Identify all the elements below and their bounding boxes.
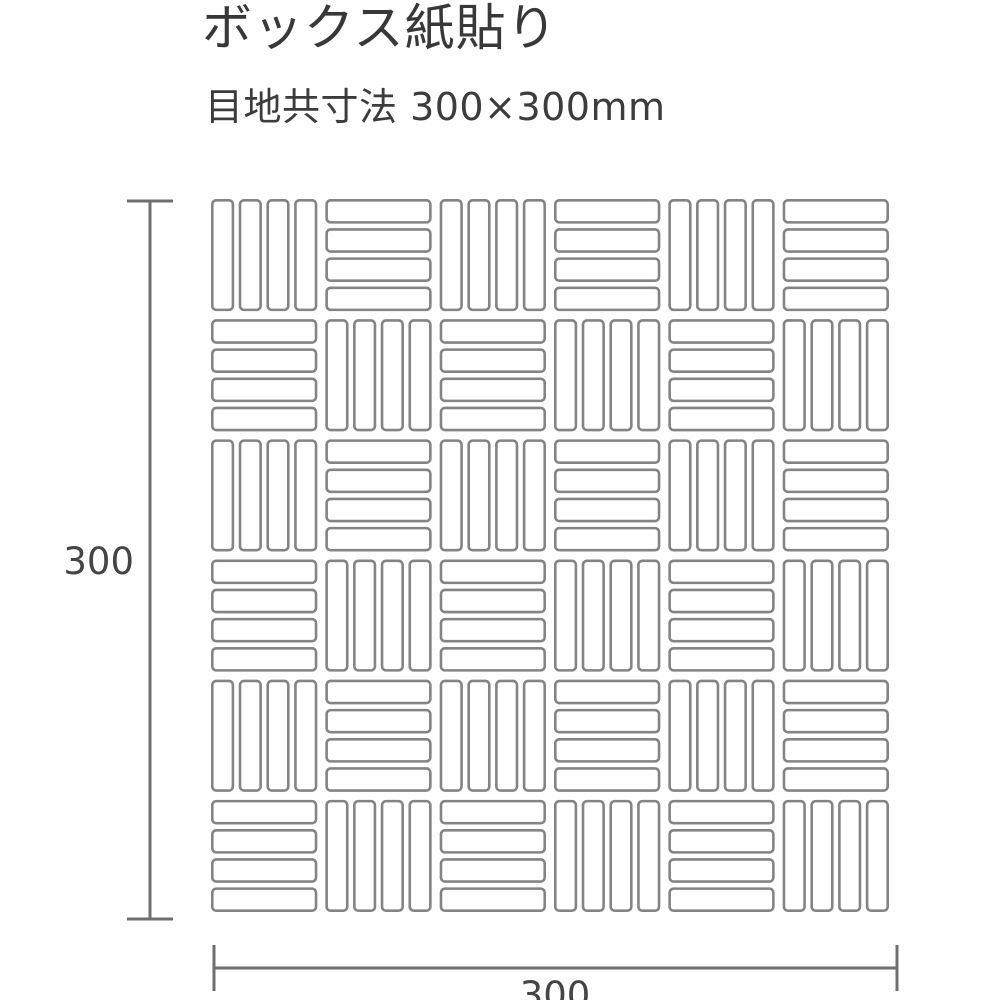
tile-bar-vertical: [670, 200, 691, 310]
tile-bar-horizontal: [327, 229, 431, 251]
tile-bar-vertical: [327, 320, 348, 430]
tile-bar-vertical: [212, 441, 233, 551]
tile-bar-horizontal: [441, 379, 545, 401]
tile-bar-horizontal: [441, 830, 545, 852]
tile-bar-horizontal: [555, 259, 659, 281]
tile-bar-horizontal: [555, 681, 659, 703]
tile-bar-vertical: [697, 681, 718, 791]
tile-bar-horizontal: [212, 408, 316, 430]
tile-bar-vertical: [327, 801, 348, 911]
tile-bar-vertical: [382, 320, 403, 430]
tile-bar-horizontal: [327, 768, 431, 790]
tile-bar-vertical: [867, 801, 888, 911]
tile-bar-vertical: [524, 200, 545, 310]
tile-bar-horizontal: [670, 379, 774, 401]
catalog-spec-page: ボックス紙貼り 目地共寸法 300×300mm 300 300: [0, 0, 1000, 1000]
tile-bar-horizontal: [327, 441, 431, 463]
tile-bar-horizontal: [212, 648, 316, 670]
tile-bar-vertical: [697, 441, 718, 551]
tile-bar-vertical: [441, 200, 462, 310]
tile-bar-vertical: [524, 681, 545, 791]
tile-bar-horizontal: [670, 801, 774, 823]
tile-bar-vertical: [441, 681, 462, 791]
tile-bar-horizontal: [784, 710, 888, 732]
tile-bar-horizontal: [555, 470, 659, 492]
tile-bar-vertical: [268, 681, 289, 791]
tile-bar-horizontal: [670, 320, 774, 342]
height-dimension-label: 300: [58, 543, 134, 580]
tile-bar-horizontal: [555, 739, 659, 761]
tile-bar-vertical: [240, 681, 261, 791]
tile-bar-horizontal: [327, 739, 431, 761]
tile-bar-horizontal: [327, 710, 431, 732]
tile-bar-horizontal: [441, 648, 545, 670]
tile-bar-horizontal: [784, 739, 888, 761]
tile-bar-horizontal: [784, 499, 888, 521]
tile-bar-horizontal: [212, 590, 316, 612]
tile-bar-horizontal: [555, 710, 659, 732]
tile-layout-diagram: [0, 0, 1000, 1000]
tile-bar-vertical: [753, 441, 774, 551]
tile-bar-vertical: [555, 561, 576, 671]
tile-bar-horizontal: [784, 768, 888, 790]
tile-bar-horizontal: [784, 229, 888, 251]
tile-bar-vertical: [496, 441, 517, 551]
tile-bar-vertical: [638, 561, 659, 671]
tile-bar-vertical: [839, 801, 860, 911]
tile-bar-vertical: [295, 200, 316, 310]
tile-bar-vertical: [240, 200, 261, 310]
tile-bar-vertical: [638, 320, 659, 430]
tile-bar-horizontal: [784, 681, 888, 703]
tile-bar-horizontal: [212, 379, 316, 401]
tile-bar-vertical: [725, 441, 746, 551]
tile-bar-vertical: [670, 681, 691, 791]
tile-bar-horizontal: [441, 801, 545, 823]
tile-bar-vertical: [611, 561, 632, 671]
tile-bar-horizontal: [212, 859, 316, 881]
tile-bar-vertical: [354, 801, 375, 911]
tile-bar-horizontal: [327, 499, 431, 521]
tile-bar-horizontal: [670, 648, 774, 670]
tile-bar-horizontal: [327, 200, 431, 222]
tile-bar-horizontal: [784, 441, 888, 463]
tile-bar-vertical: [784, 561, 805, 671]
tile-bar-vertical: [753, 681, 774, 791]
tile-bar-horizontal: [327, 259, 431, 281]
tile-bar-vertical: [753, 200, 774, 310]
tile-bar-vertical: [784, 801, 805, 911]
tile-bar-horizontal: [212, 801, 316, 823]
tile-bar-vertical: [410, 320, 431, 430]
tile-bar-horizontal: [441, 408, 545, 430]
tile-bar-vertical: [784, 320, 805, 430]
tile-bar-horizontal: [555, 768, 659, 790]
tile-bar-vertical: [212, 200, 233, 310]
tile-bar-vertical: [268, 200, 289, 310]
tile-bar-vertical: [295, 681, 316, 791]
tile-bar-vertical: [583, 801, 604, 911]
tile-bar-horizontal: [212, 350, 316, 372]
tile-bar-vertical: [555, 801, 576, 911]
tile-bar-horizontal: [784, 200, 888, 222]
tile-bar-horizontal: [441, 619, 545, 641]
tile-bar-horizontal: [555, 499, 659, 521]
tile-bar-horizontal: [555, 288, 659, 310]
tile-bar-vertical: [382, 561, 403, 671]
tile-bar-horizontal: [441, 590, 545, 612]
tile-bar-horizontal: [327, 470, 431, 492]
tile-bar-horizontal: [327, 681, 431, 703]
tile-bar-horizontal: [212, 830, 316, 852]
tile-bar-horizontal: [212, 320, 316, 342]
tile-bar-horizontal: [670, 889, 774, 911]
tile-bar-horizontal: [670, 619, 774, 641]
tile-bar-vertical: [469, 441, 490, 551]
tile-bar-vertical: [638, 801, 659, 911]
tile-bar-horizontal: [555, 528, 659, 550]
tile-bar-vertical: [670, 441, 691, 551]
tile-bar-horizontal: [670, 590, 774, 612]
tile-bar-horizontal: [670, 561, 774, 583]
tile-bar-horizontal: [212, 561, 316, 583]
tile-bar-horizontal: [670, 830, 774, 852]
tile-bar-horizontal: [327, 528, 431, 550]
tile-bar-horizontal: [784, 259, 888, 281]
tile-bar-vertical: [240, 441, 261, 551]
tile-bar-horizontal: [327, 288, 431, 310]
tile-bar-horizontal: [670, 408, 774, 430]
tile-bar-vertical: [441, 441, 462, 551]
tile-bar-vertical: [867, 320, 888, 430]
tile-bar-vertical: [496, 200, 517, 310]
tile-bar-vertical: [725, 681, 746, 791]
tile-bar-vertical: [469, 681, 490, 791]
width-dimension-label: 300: [500, 977, 610, 1000]
tile-bar-horizontal: [555, 200, 659, 222]
tile-bar-vertical: [611, 801, 632, 911]
tile-bar-vertical: [583, 561, 604, 671]
tile-bar-vertical: [268, 441, 289, 551]
tile-bar-vertical: [354, 561, 375, 671]
tile-bar-vertical: [812, 561, 833, 671]
tile-bar-horizontal: [441, 320, 545, 342]
tile-bar-vertical: [555, 320, 576, 430]
tile-bar-vertical: [867, 561, 888, 671]
tile-bar-vertical: [611, 320, 632, 430]
tile-bar-vertical: [812, 320, 833, 430]
tile-bar-vertical: [410, 561, 431, 671]
tile-bar-horizontal: [441, 350, 545, 372]
tile-bar-horizontal: [441, 561, 545, 583]
tile-bar-horizontal: [555, 229, 659, 251]
tile-bar-vertical: [812, 801, 833, 911]
tile-bar-vertical: [839, 561, 860, 671]
tile-bar-vertical: [697, 200, 718, 310]
tile-bar-vertical: [583, 320, 604, 430]
tile-bar-horizontal: [670, 350, 774, 372]
tile-bar-horizontal: [784, 288, 888, 310]
tile-bar-horizontal: [784, 470, 888, 492]
tile-bar-vertical: [212, 681, 233, 791]
tile-bar-horizontal: [212, 889, 316, 911]
tile-bar-vertical: [354, 320, 375, 430]
tile-bar-vertical: [295, 441, 316, 551]
tile-bar-vertical: [327, 561, 348, 671]
tile-bar-horizontal: [784, 528, 888, 550]
tile-bar-vertical: [496, 681, 517, 791]
tile-bar-horizontal: [212, 619, 316, 641]
tile-bar-vertical: [839, 320, 860, 430]
tile-bar-vertical: [382, 801, 403, 911]
tile-bar-horizontal: [441, 859, 545, 881]
tile-bar-vertical: [410, 801, 431, 911]
tile-bar-vertical: [524, 441, 545, 551]
tile-bar-horizontal: [670, 859, 774, 881]
tile-bar-vertical: [725, 200, 746, 310]
tile-bar-horizontal: [441, 889, 545, 911]
tile-bar-horizontal: [555, 441, 659, 463]
tile-bar-vertical: [469, 200, 490, 310]
